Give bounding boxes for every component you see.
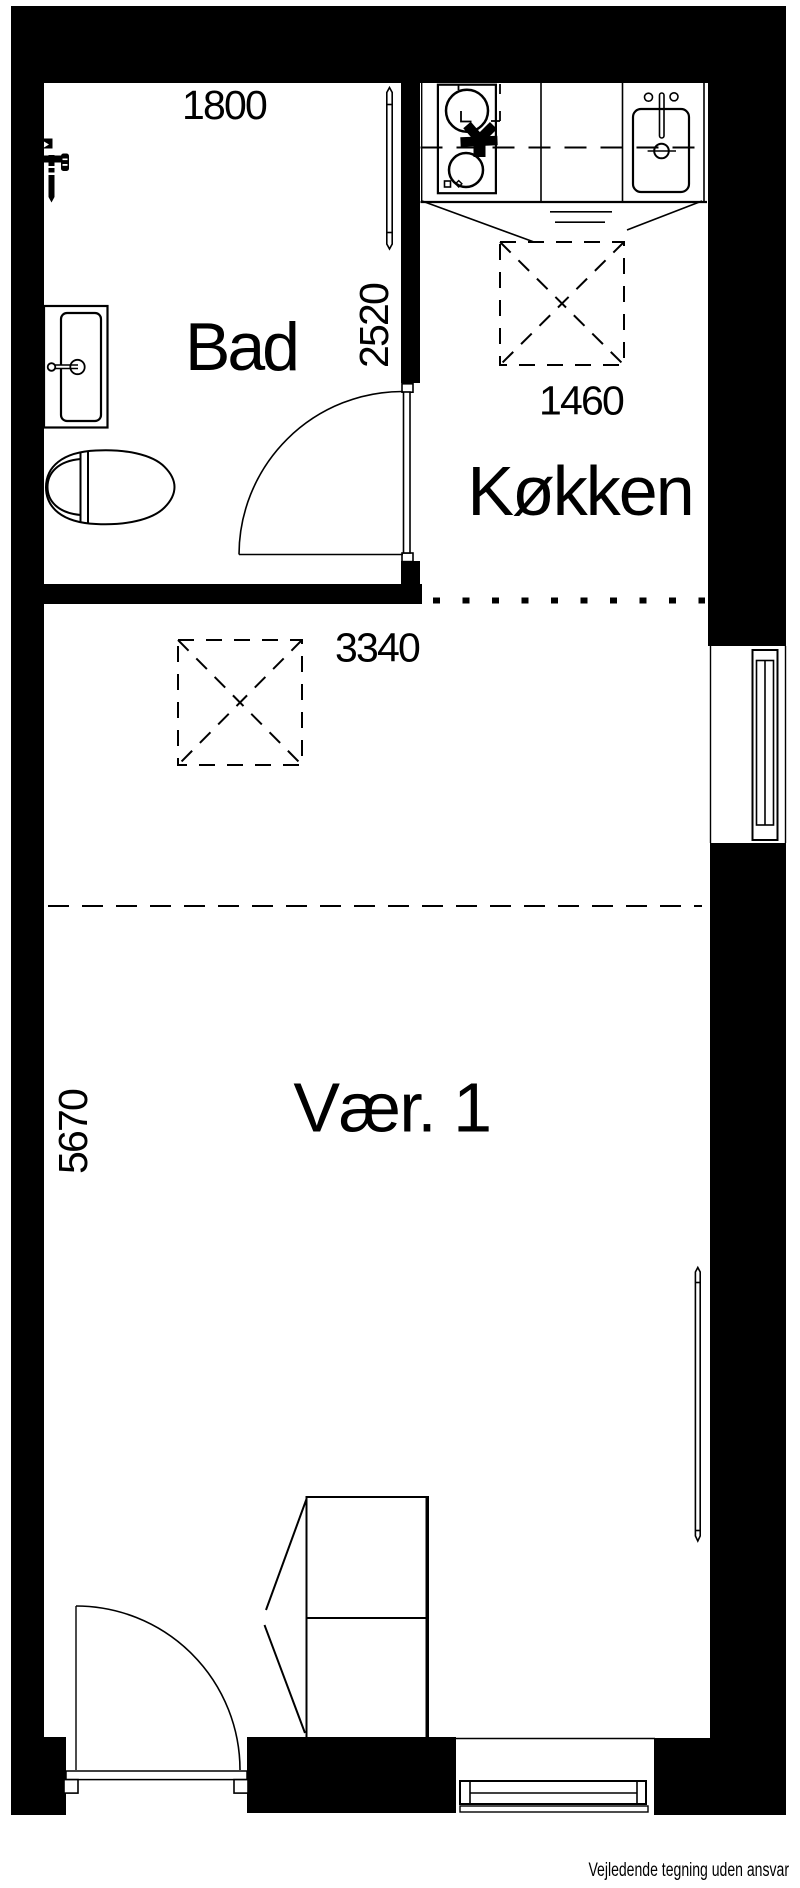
svg-text:1800: 1800: [182, 82, 267, 128]
svg-text:2520: 2520: [351, 283, 397, 368]
svg-text:Køkken: Køkken: [467, 452, 692, 530]
svg-text:3340: 3340: [335, 625, 420, 671]
svg-text:Bad: Bad: [185, 309, 297, 385]
svg-text:Vær. 1: Vær. 1: [293, 1069, 490, 1147]
svg-text:Vejledende tegning uden ansvar: Vejledende tegning uden ansvar: [588, 1859, 789, 1881]
svg-text:1460: 1460: [539, 378, 624, 424]
svg-text:5670: 5670: [50, 1089, 96, 1174]
